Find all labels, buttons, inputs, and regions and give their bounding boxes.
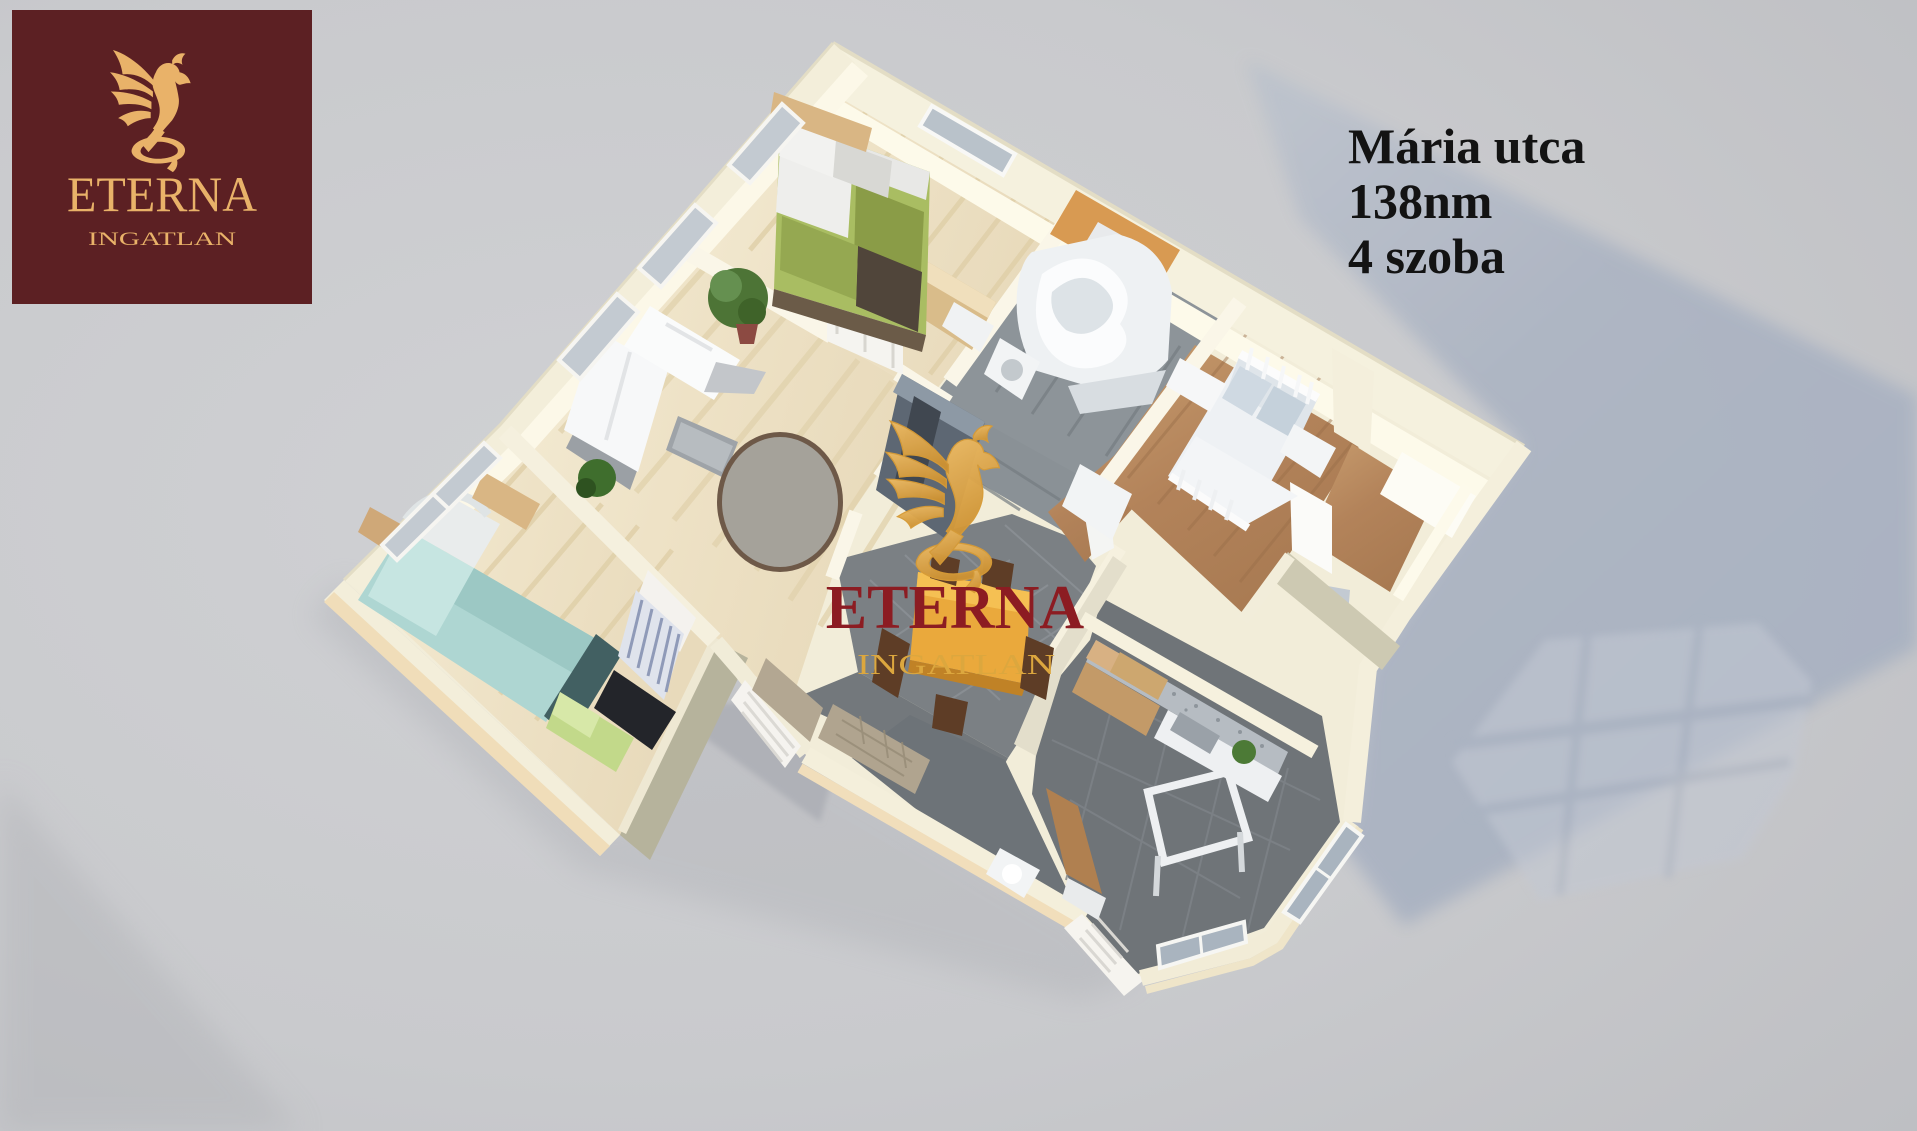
svg-text:Mária utca: Mária utca — [1348, 118, 1585, 174]
svg-text:138nm: 138nm — [1348, 173, 1492, 229]
svg-text:ETERNA: ETERNA — [67, 166, 257, 222]
svg-text:ETERNA: ETERNA — [826, 574, 1085, 642]
svg-text:INGATLAN: INGATLAN — [857, 650, 1055, 681]
svg-text:4 szoba: 4 szoba — [1348, 228, 1505, 284]
svg-text:INGATLAN: INGATLAN — [88, 229, 236, 250]
